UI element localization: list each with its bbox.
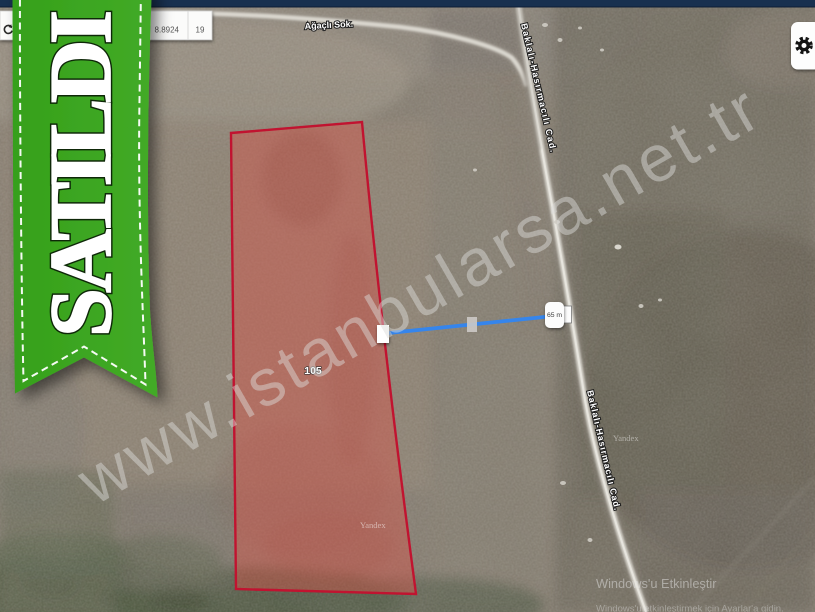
svg-text:Windows'u etkinleştirmek için: Windows'u etkinleştirmek için Ayarlar'a … [596, 604, 784, 612]
svg-text:65 m: 65 m [547, 312, 562, 319]
svg-text:8.8924: 8.8924 [155, 26, 180, 35]
svg-text:Windows'u Etkinleştir: Windows'u Etkinleştir [596, 576, 717, 591]
svg-text:SATILDI: SATILDI [33, 10, 130, 337]
svg-text:19: 19 [196, 26, 205, 35]
svg-text:Yandex: Yandex [360, 520, 386, 530]
svg-text:Yandex: Yandex [613, 433, 639, 443]
